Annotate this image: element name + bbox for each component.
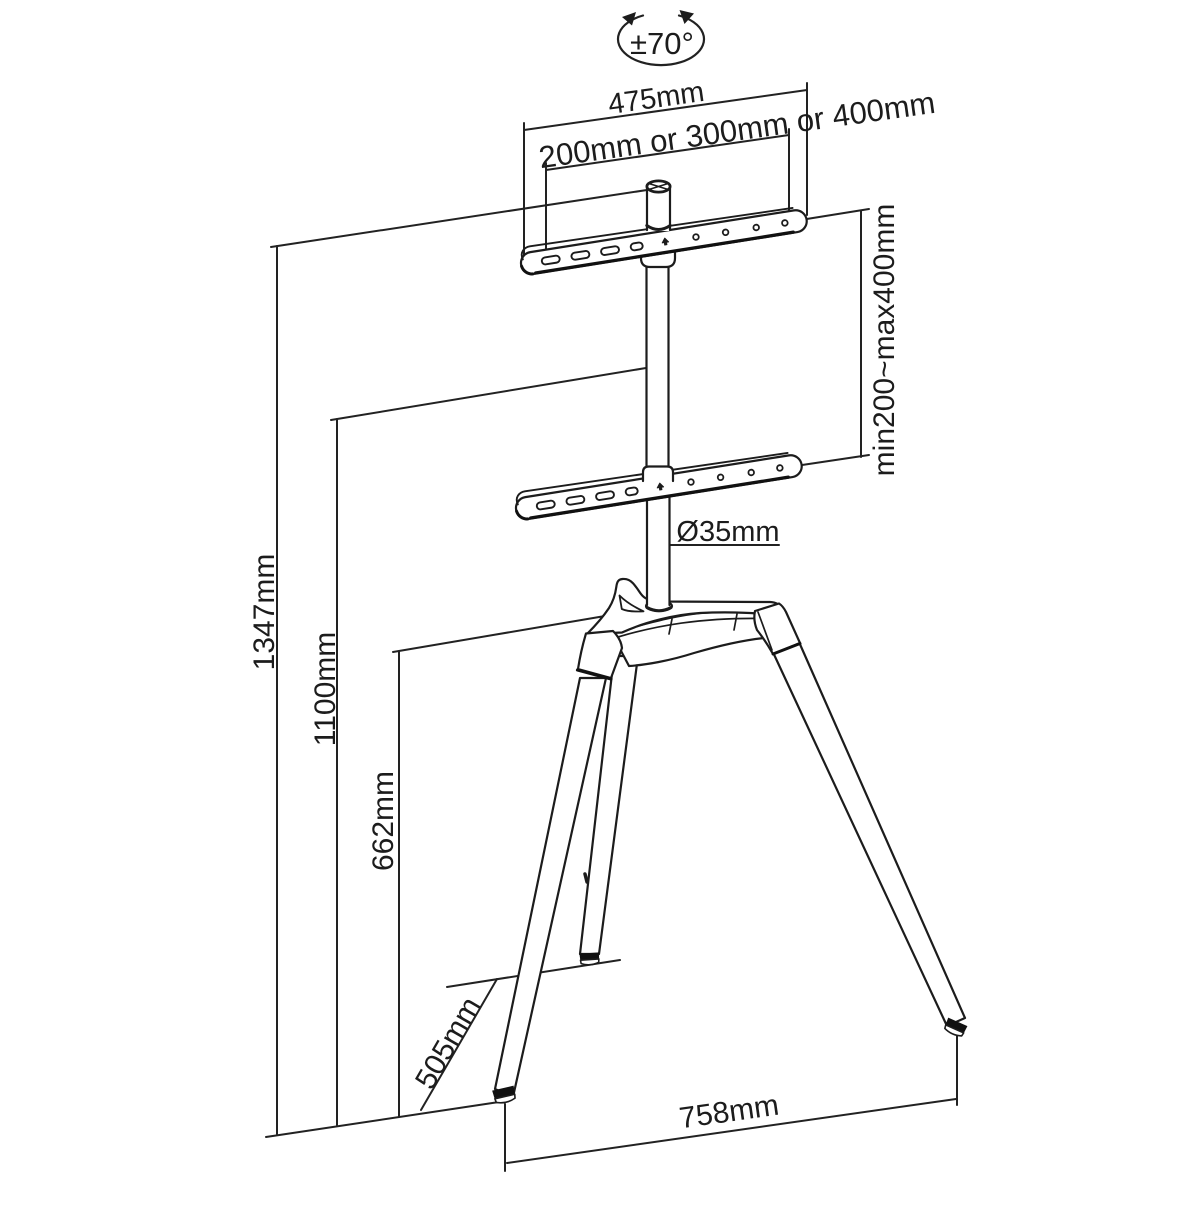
svg-text:662mm: 662mm (367, 771, 400, 871)
svg-text:1100mm: 1100mm (309, 632, 342, 747)
svg-text:Ø35mm: Ø35mm (676, 516, 779, 548)
svg-text:475mm: 475mm (606, 76, 706, 121)
svg-text:min200~max400mm: min200~max400mm (868, 204, 901, 477)
svg-text:200mm or 300mm or 400mm: 200mm or 300mm or 400mm (537, 85, 938, 175)
svg-text:505mm: 505mm (409, 992, 488, 1095)
svg-text:758mm: 758mm (677, 1089, 781, 1136)
svg-text:1347mm: 1347mm (248, 554, 281, 671)
svg-text:±70°: ±70° (630, 26, 694, 61)
